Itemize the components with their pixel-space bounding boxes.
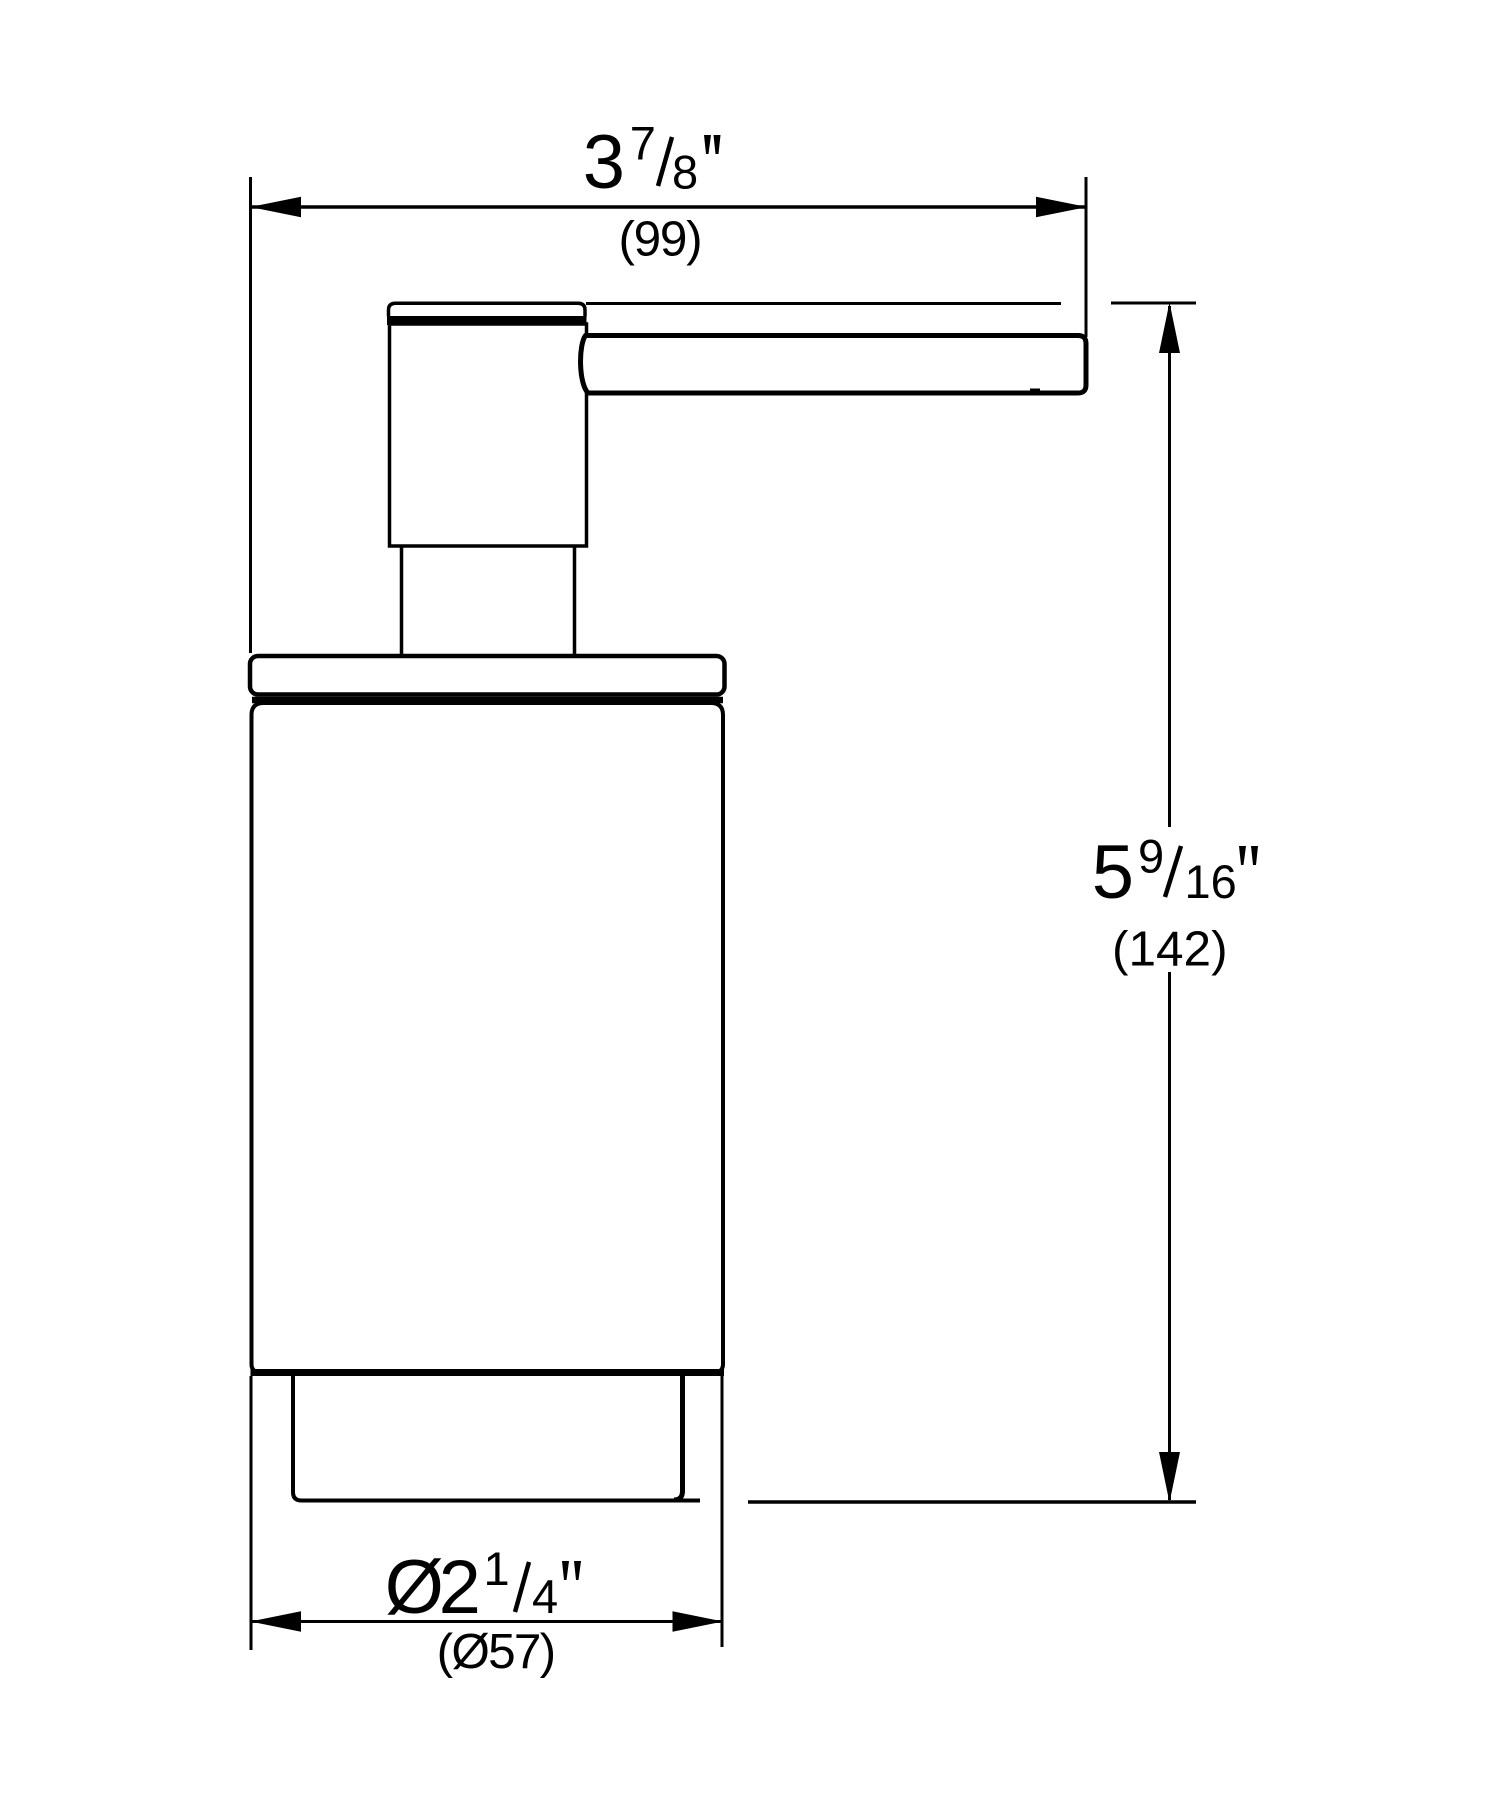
svg-text:Ø: Ø	[385, 1545, 444, 1630]
svg-text:5: 5	[1092, 830, 1134, 915]
svg-text:7: 7	[630, 117, 656, 170]
svg-text:(142): (142)	[1112, 922, 1228, 977]
svg-text:1: 1	[484, 1542, 510, 1595]
svg-text:3: 3	[583, 120, 625, 205]
svg-text:(Ø57): (Ø57)	[437, 1624, 555, 1679]
svg-text:4: 4	[532, 1570, 558, 1623]
svg-text:9: 9	[1138, 830, 1164, 883]
svg-text:16: 16	[1185, 855, 1237, 908]
svg-text:2: 2	[439, 1545, 481, 1630]
svg-text:8: 8	[672, 146, 698, 199]
svg-text:(99): (99)	[619, 212, 702, 267]
